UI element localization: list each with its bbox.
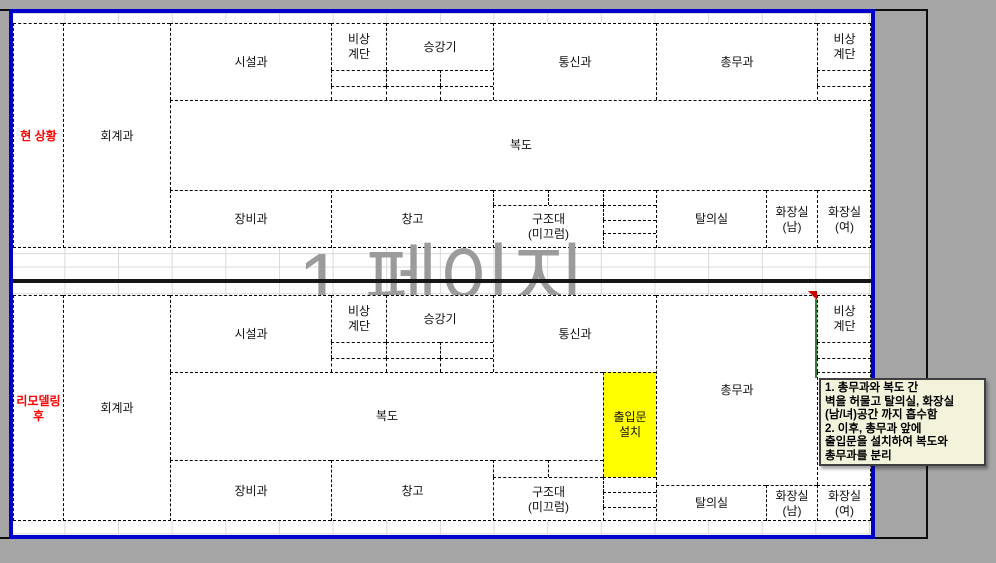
elevator-shaft-cell[interactable]	[386, 358, 440, 372]
cell-restroom-men-current[interactable]: 화장실 (남)	[766, 190, 817, 248]
cell-dressing-room-after[interactable]: 탈의실	[656, 485, 766, 521]
comment-text: 1. 총무과와 복도 간 벽을 허물고 탈의실, 화장실 (남/녀)공간 까지 …	[825, 382, 980, 464]
cell-emergency-stairs-left-after[interactable]: 비상 계단	[331, 295, 386, 342]
stairs-landing-cell[interactable]	[817, 342, 871, 358]
cell-communications-current[interactable]: 통신과	[493, 23, 656, 100]
cell-accounting-current[interactable]: 회계과	[63, 23, 170, 248]
excel-page-break-preview: 현 상황 회계과 시설과 비상 계단 승강기 통신과 총무과 비상 계단 복도 …	[0, 0, 996, 563]
slide-step-cell[interactable]	[603, 220, 656, 233]
elevator-shaft-cell[interactable]	[440, 70, 493, 86]
stairs-landing-cell[interactable]	[817, 86, 871, 100]
cell-emergency-stairs-left-current[interactable]: 비상 계단	[331, 23, 386, 70]
page-divider-line	[13, 279, 871, 283]
cell-rescue-slide-after[interactable]: 구조대 (미끄럼)	[493, 477, 603, 521]
slide-step-cell[interactable]	[603, 233, 656, 248]
slide-step-cell[interactable]	[603, 507, 656, 521]
cell-facilities-after[interactable]: 시설과	[170, 295, 331, 372]
stairs-landing-cell[interactable]	[331, 86, 386, 100]
elevator-shaft-cell[interactable]	[440, 342, 493, 358]
cell-equipment-after[interactable]: 장비과	[170, 460, 331, 521]
rescue-top-cell[interactable]	[548, 190, 603, 205]
cell-door-install-after[interactable]: 출입문 설치	[603, 372, 656, 477]
cell-restroom-men-after[interactable]: 화장실 (남)	[766, 485, 817, 521]
elevator-shaft-cell[interactable]	[386, 342, 440, 358]
cell-emergency-stairs-right-after[interactable]: 비상 계단	[817, 295, 871, 342]
cell-general-affairs-current[interactable]: 총무과	[656, 23, 817, 100]
plan-label-current[interactable]: 현 상황	[13, 23, 63, 248]
cell-general-affairs-after[interactable]: 총무과	[656, 295, 817, 485]
comment-leader-line	[815, 299, 817, 378]
cell-corridor-after[interactable]: 복도	[170, 372, 603, 460]
comment-box[interactable]: 1. 총무과와 복도 간 벽을 허물고 탈의실, 화장실 (남/녀)공간 까지 …	[819, 378, 986, 466]
stairs-landing-cell[interactable]	[331, 358, 386, 372]
elevator-shaft-cell[interactable]	[386, 70, 440, 86]
elevator-shaft-cell[interactable]	[440, 358, 493, 372]
stairs-landing-cell[interactable]	[331, 70, 386, 86]
cell-elevator-after[interactable]: 승강기	[386, 295, 493, 342]
slide-step-cell[interactable]	[603, 492, 656, 507]
elevator-shaft-cell[interactable]	[440, 86, 493, 100]
elevator-shaft-cell[interactable]	[386, 86, 440, 100]
rescue-top-cell[interactable]	[493, 460, 548, 477]
cell-restroom-women-current[interactable]: 화장실 (여)	[817, 190, 871, 248]
slide-step-cell[interactable]	[603, 477, 656, 492]
cell-emergency-stairs-right-current[interactable]: 비상 계단	[817, 23, 871, 70]
cell-dressing-room-current[interactable]: 탈의실	[656, 190, 766, 248]
cell-corridor-current[interactable]: 복도	[170, 100, 871, 190]
slide-step-cell[interactable]	[603, 190, 656, 205]
slide-step-cell[interactable]	[603, 205, 656, 220]
cell-communications-after[interactable]: 통신과	[493, 295, 656, 372]
cell-facilities-current[interactable]: 시설과	[170, 23, 331, 100]
plan-label-after[interactable]: 리모델링 후	[13, 295, 63, 521]
stairs-landing-cell[interactable]	[331, 342, 386, 358]
rescue-top-cell[interactable]	[548, 460, 603, 477]
cell-elevator-current[interactable]: 승강기	[386, 23, 493, 70]
cell-restroom-women-after[interactable]: 화장실 (여)	[817, 485, 871, 521]
cell-warehouse-after[interactable]: 창고	[331, 460, 493, 521]
stairs-landing-cell[interactable]	[817, 358, 871, 372]
rescue-top-cell[interactable]	[493, 190, 548, 205]
cell-accounting-after[interactable]: 회계과	[63, 295, 170, 521]
stairs-landing-cell[interactable]	[817, 70, 871, 86]
